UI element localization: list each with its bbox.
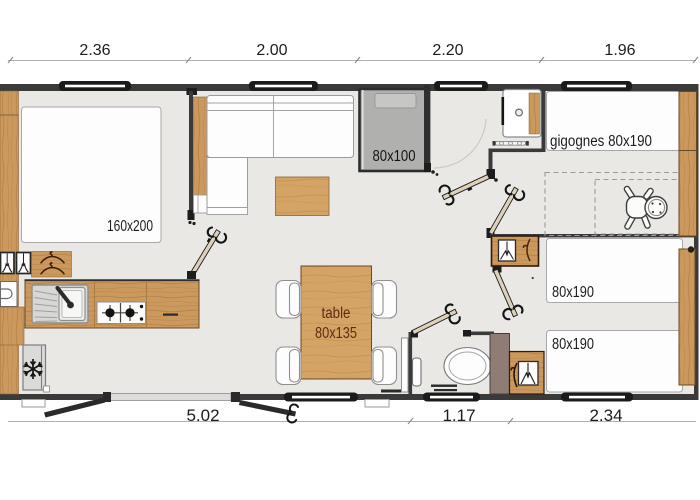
svg-text:2.34: 2.34: [589, 406, 622, 425]
svg-text:2.36: 2.36: [79, 42, 110, 59]
svg-text:2.20: 2.20: [432, 42, 463, 59]
svg-text:160x200: 160x200: [107, 218, 153, 235]
svg-text:5.02: 5.02: [186, 406, 219, 425]
svg-text:gigognes 80x190: gigognes 80x190: [550, 133, 652, 150]
svg-text:1.17: 1.17: [442, 406, 475, 425]
svg-text:80x135: 80x135: [315, 325, 357, 342]
svg-text:80x190: 80x190: [552, 336, 594, 353]
svg-text:1.96: 1.96: [604, 42, 635, 59]
svg-text:80x100: 80x100: [373, 148, 416, 165]
svg-text:2.00: 2.00: [256, 42, 287, 59]
svg-text:80x190: 80x190: [552, 284, 594, 301]
svg-text:table: table: [322, 305, 351, 322]
